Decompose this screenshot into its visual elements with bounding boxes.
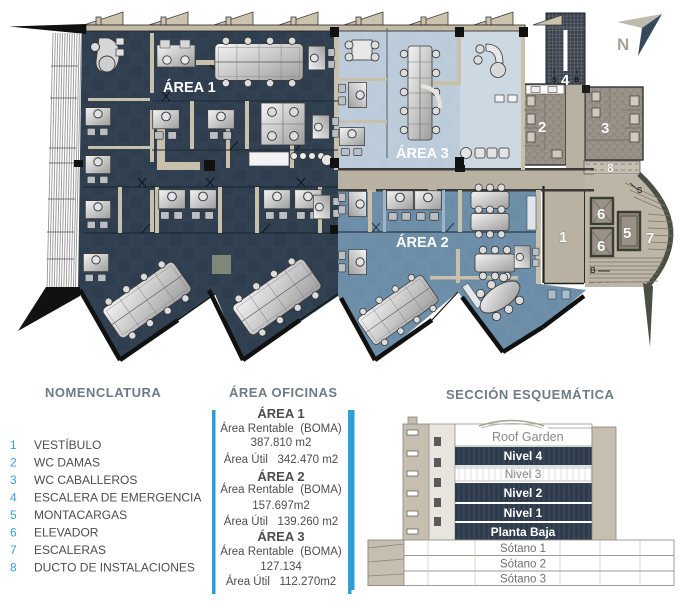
svg-text:DUCTO DE INSTALACIONES: DUCTO DE INSTALACIONES [34, 561, 195, 575]
svg-text:3: 3 [601, 120, 609, 137]
svg-text:ÁREA 2: ÁREA 2 [396, 234, 449, 251]
svg-text:ÁREA 2: ÁREA 2 [257, 469, 304, 484]
svg-text:6: 6 [597, 206, 605, 223]
svg-text:Área Rentable (BOMA): Área Rentable (BOMA) [220, 545, 342, 558]
svg-text:Área Útil 112.270m2: Área Útil 112.270m2 [226, 575, 336, 588]
svg-text:Nivel 1: Nivel 1 [504, 506, 543, 520]
svg-text:Planta Baja: Planta Baja [491, 525, 556, 539]
svg-text:Nivel 4: Nivel 4 [504, 449, 543, 463]
svg-text:5: 5 [10, 508, 17, 522]
svg-text:157.697m2: 157.697m2 [252, 500, 310, 512]
svg-text:5: 5 [623, 225, 631, 242]
svg-text:387.810 m2: 387.810 m2 [251, 437, 312, 449]
svg-text:B: B [590, 266, 596, 275]
svg-text:127.134: 127.134 [260, 561, 302, 573]
svg-text:Área Útil 139.260 m2: Área Útil 139.260 m2 [224, 515, 338, 528]
svg-text:MONTACARGAS: MONTACARGAS [34, 508, 127, 522]
svg-text:ESCALERA DE EMERGENCIA: ESCALERA DE EMERGENCIA [34, 491, 201, 505]
svg-text:1: 1 [10, 438, 17, 452]
svg-text:Área Rentable (BOMA): Área Rentable (BOMA) [220, 422, 342, 435]
svg-text:S: S [552, 77, 557, 84]
svg-text:N: N [617, 35, 629, 54]
svg-text:Área Rentable (BOMA): Área Rentable (BOMA) [220, 483, 342, 496]
svg-text:ESCALERAS: ESCALERAS [34, 543, 106, 557]
svg-text:7: 7 [10, 543, 17, 557]
svg-text:ÁREA 1: ÁREA 1 [257, 406, 304, 421]
svg-text:6: 6 [10, 526, 17, 540]
svg-text:ÁREA 3: ÁREA 3 [257, 529, 304, 544]
svg-text:6: 6 [597, 238, 605, 255]
svg-text:Nivel 2: Nivel 2 [504, 486, 543, 500]
svg-text:Nivel 3: Nivel 3 [505, 467, 542, 481]
svg-text:Sótano 2: Sótano 2 [500, 559, 546, 571]
svg-text:Área Útil 342.470 m2: Área Útil 342.470 m2 [224, 453, 338, 466]
svg-text:1: 1 [559, 229, 567, 246]
svg-text:WC CABALLEROS: WC CABALLEROS [34, 473, 137, 487]
svg-text:ÁREA OFICINAS: ÁREA OFICINAS [229, 385, 338, 400]
svg-text:ÁREA 1: ÁREA 1 [163, 79, 216, 96]
svg-text:Sótano 1: Sótano 1 [500, 543, 546, 555]
svg-text:2: 2 [10, 456, 17, 470]
svg-text:8: 8 [10, 561, 17, 575]
svg-text:VESTÍBULO: VESTÍBULO [34, 437, 101, 452]
svg-text:8: 8 [607, 161, 614, 175]
svg-text:ÁREA 3: ÁREA 3 [396, 145, 449, 162]
svg-text:4: 4 [561, 72, 570, 89]
svg-text:B: B [574, 77, 579, 84]
svg-text:2: 2 [538, 119, 546, 136]
svg-text:NOMENCLATURA: NOMENCLATURA [45, 385, 161, 400]
svg-text:SECCIÓN ESQUEMÁTICA: SECCIÓN ESQUEMÁTICA [446, 387, 615, 402]
svg-text:4: 4 [10, 491, 17, 505]
svg-text:S: S [637, 186, 643, 195]
svg-text:Roof Garden: Roof Garden [492, 430, 564, 444]
svg-text:WC DAMAS: WC DAMAS [34, 456, 100, 470]
svg-text:7: 7 [646, 230, 654, 247]
svg-text:Sótano 3: Sótano 3 [500, 574, 546, 586]
svg-text:3: 3 [10, 473, 17, 487]
svg-text:ELEVADOR: ELEVADOR [34, 526, 99, 540]
